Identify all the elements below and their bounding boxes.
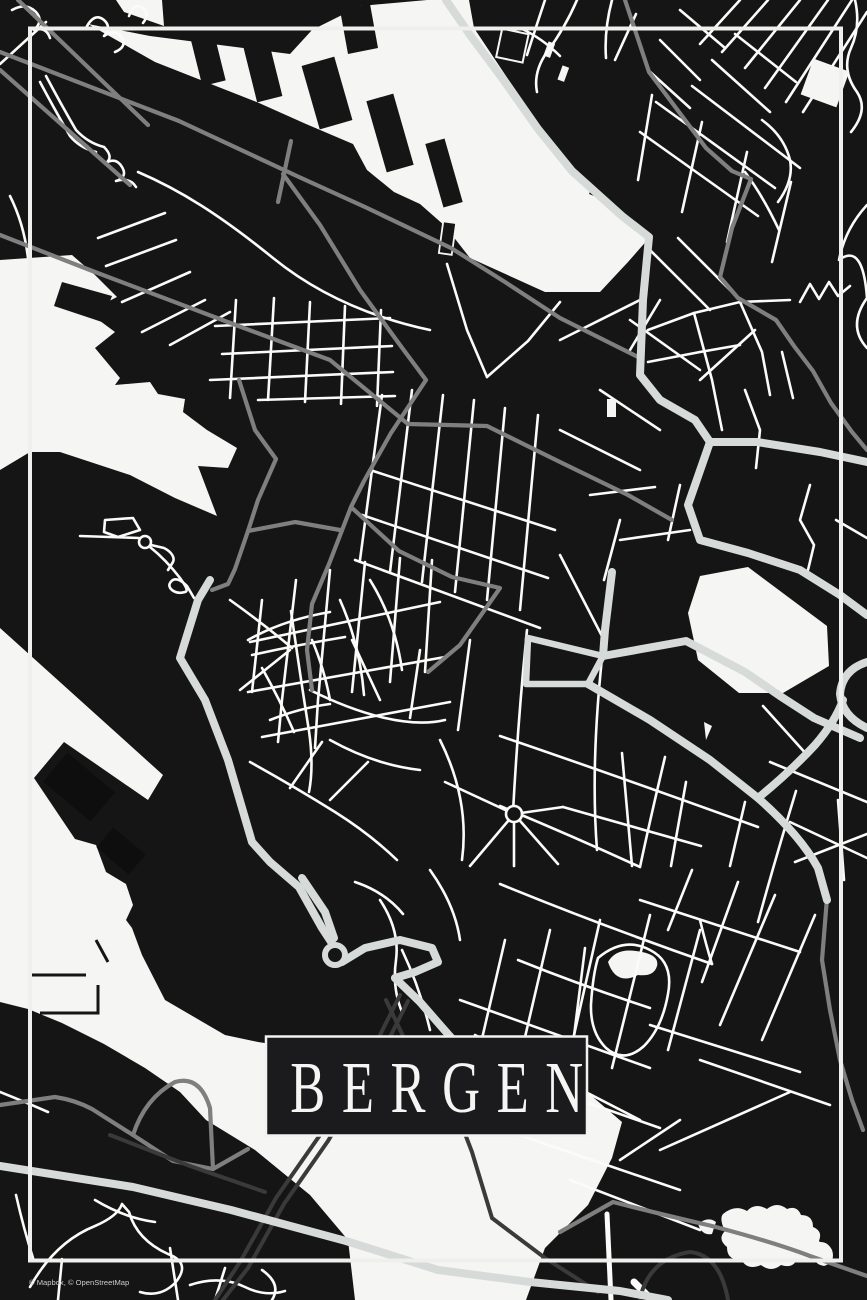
- svg-text:© Mapbox, © OpenStreetMap: © Mapbox, © OpenStreetMap: [29, 1278, 129, 1287]
- svg-text:BERGEN: BERGEN: [290, 1047, 600, 1128]
